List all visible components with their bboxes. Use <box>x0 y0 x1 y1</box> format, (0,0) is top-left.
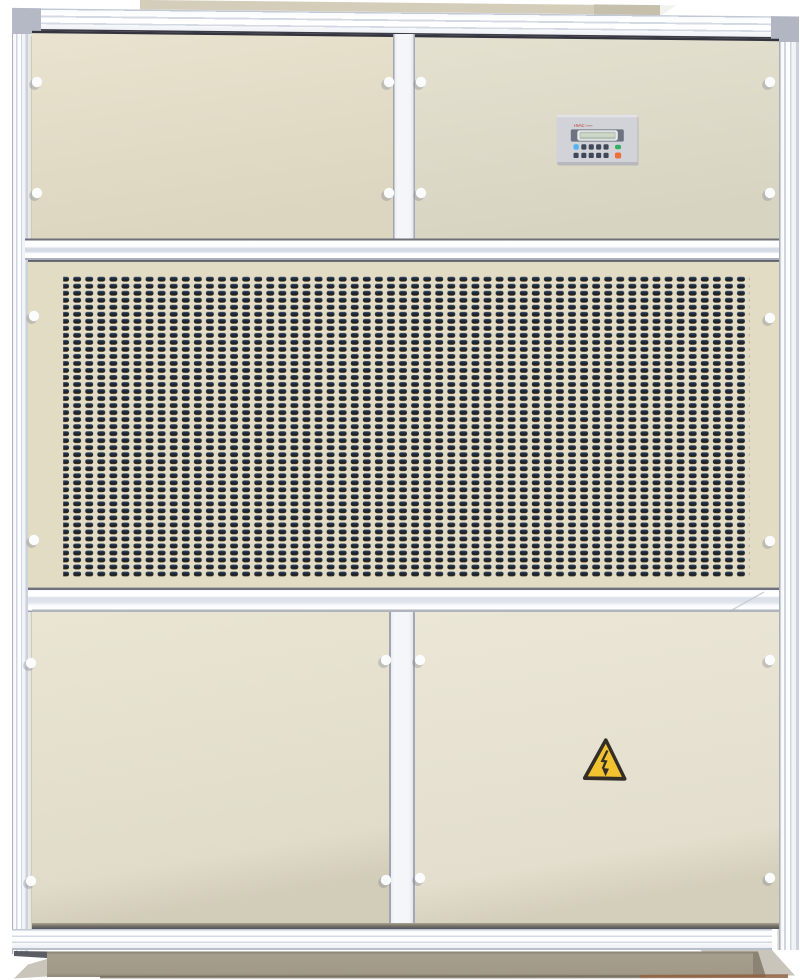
svg-text:HVAC: HVAC <box>574 123 586 128</box>
